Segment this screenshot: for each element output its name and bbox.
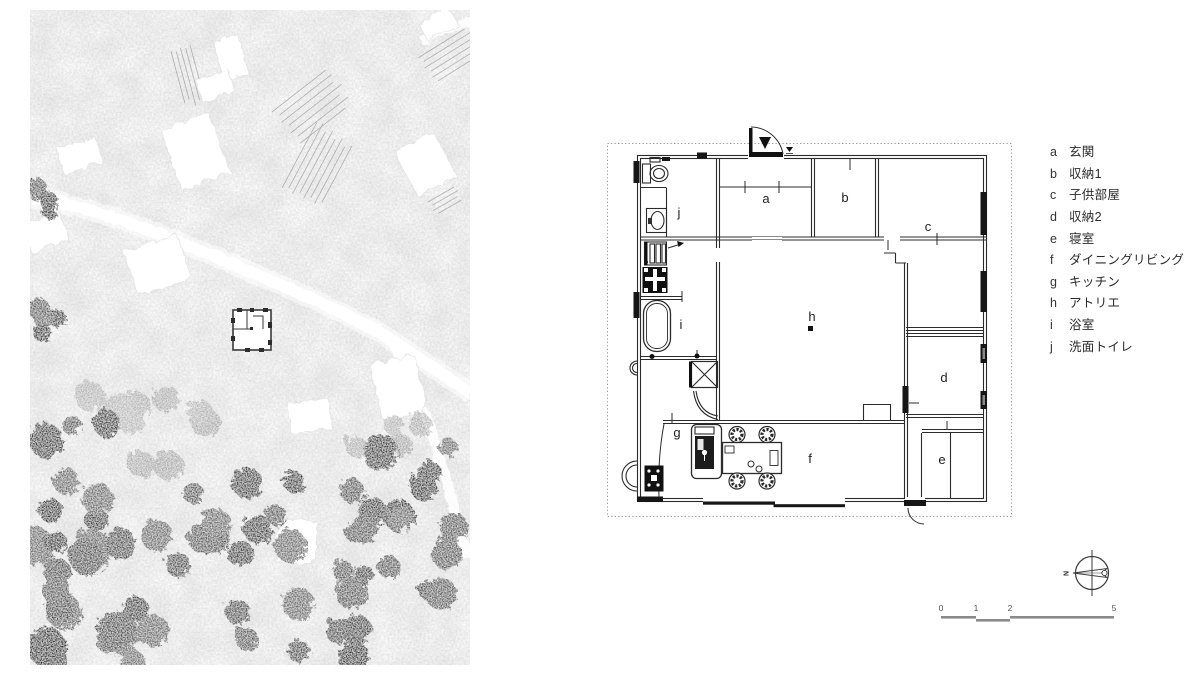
room-label-d: d — [940, 370, 947, 385]
legend-name: 洗面トイレ — [1069, 340, 1133, 354]
scale-bar: 0 1 2 5 — [939, 603, 1117, 622]
tree — [164, 551, 189, 576]
legend-item-i: i浴室 — [1050, 315, 1200, 337]
room-legend: a玄関 b収納1 c子供部屋 d収納2 e寝室 fダイニングリビング gキッチン… — [1050, 142, 1200, 358]
tree — [272, 527, 305, 560]
room-label-f: f — [808, 451, 812, 466]
tree — [282, 470, 304, 492]
legend-letter: b — [1050, 164, 1069, 186]
room-label-e: e — [938, 452, 945, 467]
tree — [30, 321, 48, 339]
legend-name: 寝室 — [1069, 232, 1095, 246]
tree — [338, 478, 362, 502]
room-label-g: g — [673, 425, 680, 440]
tree — [103, 526, 135, 558]
tree — [386, 505, 411, 530]
tree — [362, 433, 397, 468]
room-label-i: i — [680, 317, 683, 332]
site-plan — [30, 10, 470, 665]
tree — [152, 449, 182, 479]
bathtub — [644, 301, 671, 352]
room-label-h: h — [808, 309, 815, 324]
legend-name: 浴室 — [1069, 318, 1095, 332]
tree — [73, 379, 103, 409]
scale-label-2: 2 — [1008, 603, 1013, 613]
chair — [759, 427, 775, 443]
washbasin — [647, 209, 667, 233]
legend-item-c: c子供部屋 — [1050, 185, 1200, 207]
atelier-marker — [808, 326, 813, 331]
room-label-b: b — [841, 190, 848, 205]
toilet — [643, 158, 669, 184]
tree — [96, 609, 135, 648]
tree — [437, 511, 465, 539]
scale-label-5: 5 — [1112, 603, 1117, 613]
legend-letter: d — [1050, 207, 1069, 229]
legend-letter: h — [1050, 293, 1069, 315]
scale-label-0: 0 — [939, 603, 944, 613]
tree — [429, 536, 460, 567]
tree — [437, 436, 456, 455]
annotations: N 0 1 2 5 — [920, 540, 1130, 635]
dining-set — [723, 427, 782, 490]
tree — [382, 413, 402, 433]
chair — [729, 427, 745, 443]
tree — [126, 449, 153, 476]
legend-item-f: fダイニングリビング — [1050, 250, 1200, 272]
terrace-door — [904, 500, 926, 524]
door-swing-arrow — [668, 241, 684, 248]
legend-item-e: e寝室 — [1050, 229, 1200, 251]
legend-name: ダイニングリビング — [1069, 253, 1184, 267]
tree — [334, 576, 365, 607]
house-footprint-marker — [231, 308, 272, 352]
legend-letter: i — [1050, 315, 1069, 337]
step-platform — [864, 405, 891, 421]
room-label-c: c — [925, 219, 932, 234]
tree — [80, 481, 112, 513]
tree — [417, 459, 439, 481]
legend-letter: e — [1050, 229, 1069, 251]
void-box — [689, 362, 718, 388]
washing-machine — [643, 267, 668, 293]
legend-name: 子供部屋 — [1069, 188, 1120, 202]
room-label-j: j — [677, 205, 681, 220]
tree — [230, 466, 261, 497]
entrance-door — [749, 127, 793, 157]
legend-name: 収納1 — [1069, 167, 1102, 181]
tree — [286, 638, 308, 660]
tree — [134, 612, 166, 644]
tree — [40, 574, 69, 603]
legend-letter: c — [1050, 185, 1069, 207]
chair — [759, 473, 775, 489]
legend-name: 収納2 — [1069, 210, 1102, 224]
tree — [139, 517, 171, 549]
room-label-a: a — [762, 191, 770, 206]
chair — [729, 473, 745, 489]
tree — [323, 618, 345, 640]
north-compass-icon: N — [1064, 550, 1109, 596]
legend-letter: f — [1050, 250, 1069, 272]
tree — [117, 409, 141, 433]
legend-letter: j — [1050, 337, 1069, 359]
legend-name: アトリエ — [1069, 296, 1120, 310]
tree — [223, 597, 248, 622]
tree — [67, 537, 102, 572]
stove — [645, 466, 664, 492]
legend-name: 玄関 — [1069, 145, 1095, 159]
tree — [39, 201, 55, 217]
faucet-fixture — [695, 354, 700, 359]
tree — [60, 413, 80, 433]
north-label: N — [1064, 571, 1071, 576]
tree — [90, 407, 117, 434]
tree — [187, 399, 211, 423]
exterior-bays — [622, 361, 637, 491]
tree — [37, 497, 61, 521]
tree — [152, 385, 178, 411]
legend-item-a: a玄関 — [1050, 142, 1200, 164]
legend-letter: a — [1050, 142, 1069, 164]
legend-item-d: d収納2 — [1050, 207, 1200, 229]
legend-item-b: b収納1 — [1050, 164, 1200, 186]
tree — [43, 530, 65, 552]
floor-plan: a b c d e f g h i j — [595, 120, 1025, 525]
tree — [375, 553, 397, 575]
drain-fixture — [650, 354, 655, 359]
tree — [51, 467, 77, 493]
tree — [225, 538, 251, 564]
tree — [200, 507, 229, 536]
shelf-unit — [645, 242, 667, 265]
tree — [233, 625, 256, 648]
legend-item-h: hアトリエ — [1050, 293, 1200, 315]
tree — [406, 411, 430, 435]
kitchen-island — [692, 425, 722, 479]
legend-letter: g — [1050, 272, 1069, 294]
tree — [344, 434, 365, 455]
tree — [262, 502, 284, 524]
tree — [348, 513, 377, 542]
legend-name: キッチン — [1069, 275, 1120, 289]
scale-label-1: 1 — [974, 603, 979, 613]
tree — [423, 576, 455, 608]
legend-item-g: gキッチン — [1050, 272, 1200, 294]
windows — [634, 153, 988, 414]
tree — [180, 481, 201, 502]
curved-partition — [694, 391, 719, 420]
page: a b c d e f g h i j a玄関 b収納1 c子供部屋 d収納2 … — [0, 0, 1200, 675]
tree — [280, 585, 313, 618]
legend-item-j: j洗面トイレ — [1050, 337, 1200, 359]
